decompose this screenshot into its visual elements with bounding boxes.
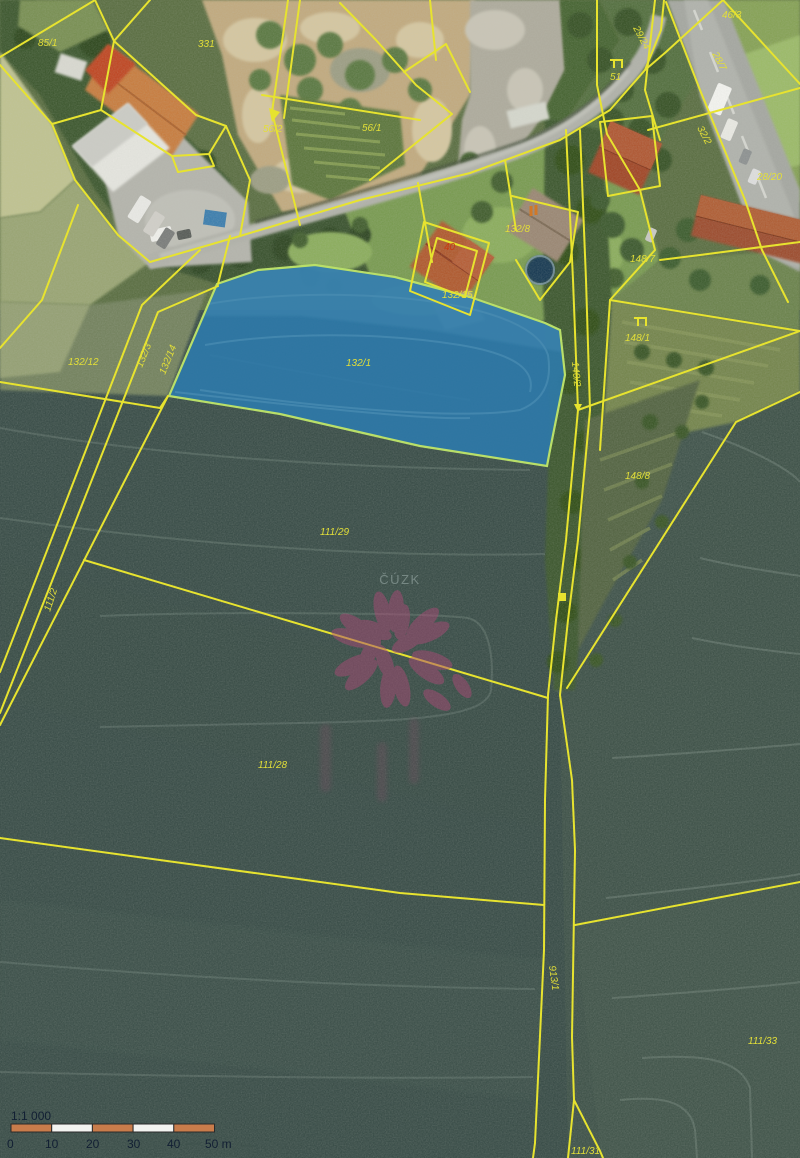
svg-text:148/7: 148/7 xyxy=(630,254,655,265)
svg-text:111/33: 111/33 xyxy=(748,1036,778,1047)
svg-text:30: 30 xyxy=(127,1137,141,1151)
svg-text:56/1: 56/1 xyxy=(362,123,381,134)
svg-text:51: 51 xyxy=(610,72,621,83)
svg-text:132/8: 132/8 xyxy=(505,224,530,235)
svg-text:40: 40 xyxy=(167,1137,181,1151)
svg-text:1:1 000: 1:1 000 xyxy=(11,1109,51,1123)
svg-text:0: 0 xyxy=(7,1137,14,1151)
svg-text:111/29: 111/29 xyxy=(320,527,350,538)
svg-text:148/1: 148/1 xyxy=(625,333,650,344)
svg-text:46/3: 46/3 xyxy=(722,10,742,21)
svg-text:56/2: 56/2 xyxy=(263,124,283,135)
svg-text:111/28: 111/28 xyxy=(258,760,288,771)
svg-text:10: 10 xyxy=(45,1137,59,1151)
svg-text:40: 40 xyxy=(444,242,456,253)
svg-text:331: 331 xyxy=(198,39,215,50)
svg-text:132/1: 132/1 xyxy=(346,358,371,369)
svg-text:20: 20 xyxy=(86,1137,100,1151)
svg-text:132/12: 132/12 xyxy=(68,357,99,368)
svg-text:132/15: 132/15 xyxy=(442,290,473,301)
svg-text:111/31: 111/31 xyxy=(571,1146,600,1157)
svg-text:50 m: 50 m xyxy=(205,1137,232,1151)
svg-text:ČÚZK: ČÚZK xyxy=(379,572,420,587)
svg-text:148/8: 148/8 xyxy=(625,471,650,482)
svg-text:140/2: 140/2 xyxy=(569,361,582,387)
svg-text:85/1: 85/1 xyxy=(38,38,57,49)
svg-text:28/20: 28/20 xyxy=(756,172,782,183)
